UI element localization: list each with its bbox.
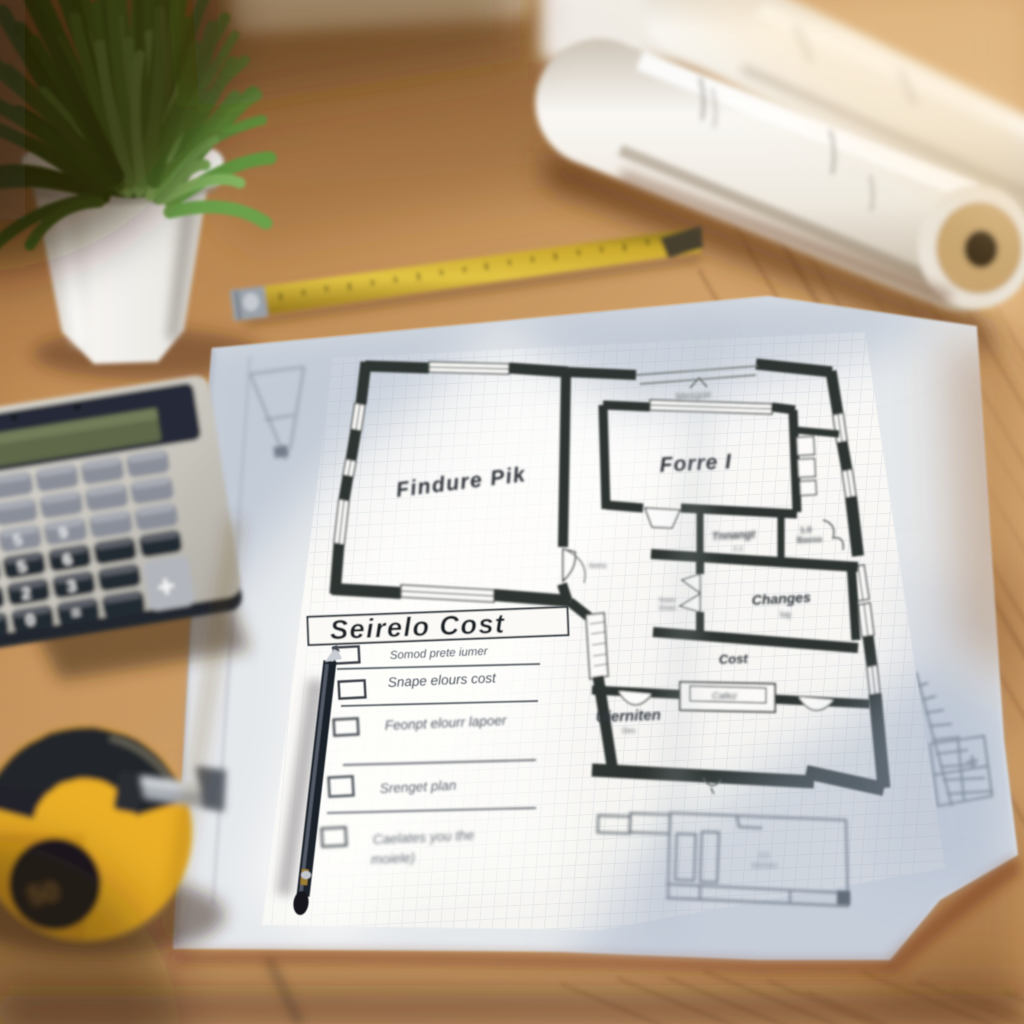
svg-text:Iivms: Iivms	[589, 561, 607, 570]
svg-text:Nuew: Nuew	[659, 597, 676, 604]
svg-text:Cafez: Cafez	[712, 691, 737, 702]
svg-text:Dinter: Dinter	[659, 605, 677, 612]
svg-text:moiele): moiele)	[370, 850, 415, 867]
svg-text:2.2: 2.2	[733, 546, 743, 553]
svg-text:Changes: Changes	[751, 589, 811, 608]
svg-text:Bassa: Bassa	[797, 534, 823, 545]
svg-text:lug: lug	[780, 610, 791, 619]
svg-text:Des: Des	[622, 726, 636, 735]
svg-text:Uierniten: Uierniten	[596, 707, 662, 726]
svg-text:Cost: Cost	[719, 651, 749, 667]
svg-text:Tnnangt: Tnnangt	[712, 529, 757, 543]
